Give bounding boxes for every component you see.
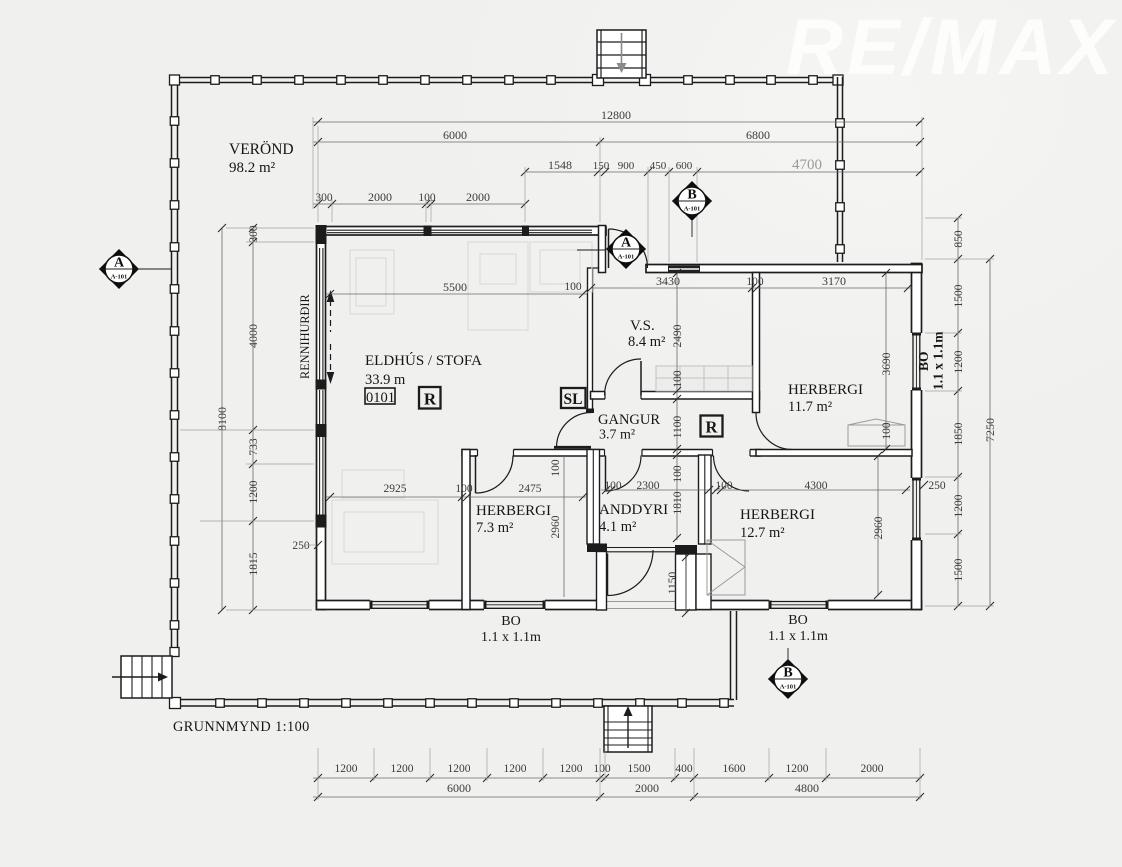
svg-text:2000: 2000 — [368, 190, 392, 204]
svg-text:A: A — [621, 236, 632, 251]
svg-text:33.9 m: 33.9 m — [365, 372, 406, 388]
svg-text:1200: 1200 — [560, 763, 583, 775]
svg-text:1200: 1200 — [786, 763, 809, 775]
svg-text:12800: 12800 — [601, 108, 631, 122]
svg-text:2960: 2960 — [873, 516, 885, 539]
svg-text:VERÖND: VERÖND — [229, 141, 294, 158]
svg-text:100: 100 — [604, 480, 622, 492]
svg-text:3430: 3430 — [656, 274, 680, 288]
svg-text:600: 600 — [676, 160, 693, 172]
svg-text:850: 850 — [953, 230, 965, 248]
svg-text:BO: BO — [916, 351, 931, 371]
svg-text:733: 733 — [248, 438, 260, 456]
svg-text:SL: SL — [564, 391, 583, 408]
svg-text:0101: 0101 — [366, 390, 395, 406]
svg-text:250: 250 — [292, 540, 310, 552]
svg-text:11.7 m²: 11.7 m² — [788, 399, 833, 415]
svg-text:7250: 7250 — [983, 418, 997, 442]
svg-text:4.1 m²: 4.1 m² — [599, 519, 637, 535]
svg-text:2960: 2960 — [550, 515, 562, 538]
svg-text:4300: 4300 — [805, 480, 828, 492]
svg-text:100: 100 — [550, 459, 562, 477]
svg-text:400: 400 — [675, 763, 693, 775]
svg-text:2000: 2000 — [466, 190, 490, 204]
svg-text:1200: 1200 — [953, 350, 965, 373]
svg-text:1810: 1810 — [672, 491, 684, 514]
svg-text:7.3 m²: 7.3 m² — [476, 520, 514, 536]
svg-text:4800: 4800 — [795, 781, 819, 795]
svg-text:6000: 6000 — [447, 781, 471, 795]
svg-text:A: A — [114, 256, 125, 271]
svg-text:1600: 1600 — [723, 763, 746, 775]
svg-text:2300: 2300 — [637, 480, 660, 492]
svg-text:3170: 3170 — [822, 274, 846, 288]
svg-text:100: 100 — [418, 192, 436, 204]
svg-text:100: 100 — [593, 763, 611, 775]
svg-text:2000: 2000 — [861, 763, 884, 775]
svg-text:1200: 1200 — [391, 763, 414, 775]
svg-text:3.7 m²: 3.7 m² — [599, 428, 635, 443]
svg-text:100: 100 — [715, 480, 733, 492]
svg-text:1200: 1200 — [953, 494, 965, 517]
svg-text:1.1 x 1.1m: 1.1 x 1.1m — [481, 630, 541, 645]
svg-text:150: 150 — [593, 160, 610, 172]
svg-text:100: 100 — [564, 281, 582, 293]
svg-text:1500: 1500 — [953, 558, 965, 581]
svg-text:R: R — [706, 418, 719, 437]
svg-text:A-101: A-101 — [618, 254, 635, 261]
svg-text:A-101: A-101 — [780, 684, 797, 691]
svg-text:1200: 1200 — [335, 763, 358, 775]
svg-text:4000: 4000 — [246, 324, 260, 348]
svg-text:250: 250 — [928, 480, 946, 492]
svg-text:RENNIHURÐIR: RENNIHURÐIR — [298, 293, 312, 379]
svg-text:12.7 m²: 12.7 m² — [740, 525, 785, 541]
svg-text:BO: BO — [501, 614, 520, 629]
svg-text:100: 100 — [672, 370, 684, 388]
svg-text:2000: 2000 — [635, 781, 659, 795]
svg-text:1548: 1548 — [548, 158, 572, 172]
svg-text:1200: 1200 — [248, 480, 260, 503]
svg-text:A-101: A-101 — [684, 206, 701, 213]
svg-text:4700: 4700 — [792, 157, 822, 173]
svg-text:1200: 1200 — [504, 763, 527, 775]
svg-text:1200: 1200 — [448, 763, 471, 775]
svg-text:B: B — [687, 188, 696, 203]
svg-text:2490: 2490 — [672, 324, 684, 347]
svg-text:5500: 5500 — [443, 280, 467, 294]
svg-text:HERBERGI: HERBERGI — [740, 507, 815, 523]
svg-text:3690: 3690 — [881, 352, 893, 375]
svg-text:8100: 8100 — [215, 407, 229, 431]
svg-text:B: B — [783, 666, 792, 681]
svg-text:HERBERGI: HERBERGI — [788, 382, 863, 398]
svg-text:900: 900 — [618, 160, 635, 172]
svg-text:1150: 1150 — [667, 571, 679, 594]
svg-text:A-101: A-101 — [111, 274, 128, 281]
svg-text:8.4 m²: 8.4 m² — [628, 334, 666, 350]
svg-text:HERBERGI: HERBERGI — [476, 503, 551, 519]
svg-text:6800: 6800 — [746, 128, 770, 142]
svg-text:1.1 x 1.1m: 1.1 x 1.1m — [931, 331, 946, 390]
svg-text:1100: 1100 — [672, 415, 684, 438]
svg-text:BO: BO — [788, 613, 807, 628]
svg-text:R: R — [424, 390, 437, 409]
svg-text:1500: 1500 — [628, 763, 651, 775]
svg-text:1500: 1500 — [953, 284, 965, 307]
svg-text:1815: 1815 — [248, 552, 260, 575]
svg-text:2475: 2475 — [519, 483, 542, 495]
svg-text:98.2 m²: 98.2 m² — [229, 160, 276, 176]
svg-text:6000: 6000 — [443, 128, 467, 142]
svg-text:100: 100 — [746, 276, 764, 288]
svg-text:450: 450 — [650, 160, 667, 172]
svg-text:ANDDYRI: ANDDYRI — [599, 502, 668, 518]
svg-text:100: 100 — [672, 465, 684, 483]
svg-text:1850: 1850 — [953, 422, 965, 445]
svg-text:GRUNNMYND 1:100: GRUNNMYND 1:100 — [173, 719, 310, 735]
svg-text:ELDHÚS / STOFA: ELDHÚS / STOFA — [365, 352, 482, 369]
svg-text:100: 100 — [881, 422, 893, 440]
svg-text:100: 100 — [455, 483, 473, 495]
svg-text:2925: 2925 — [384, 483, 407, 495]
svg-text:GANGUR: GANGUR — [598, 412, 660, 428]
svg-text:1.1 x 1.1m: 1.1 x 1.1m — [768, 629, 828, 644]
svg-text:V.S.: V.S. — [630, 318, 655, 334]
